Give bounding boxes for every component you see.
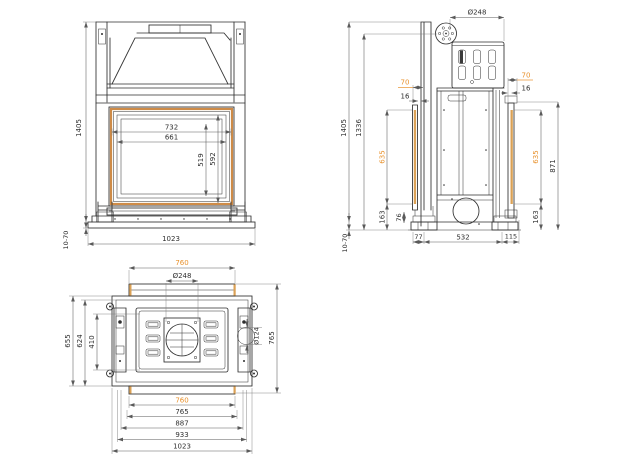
dim-side-front-thickness: 16 xyxy=(401,93,410,101)
side-top-box xyxy=(452,42,504,88)
side-view: Ø248 1405 1336 10-70 70 16 635 163 76 77… xyxy=(340,9,558,253)
dim-side-rear-thickness: 16 xyxy=(522,85,531,93)
dim-plan-depth-inner: 624 xyxy=(76,334,84,348)
dim-plan-depth-total: 765 xyxy=(268,331,276,344)
dim-front-glass-height: 519 xyxy=(197,153,205,166)
dim-plan-frame-width-bottom: 760 xyxy=(175,397,188,405)
side-lift-rod xyxy=(460,51,463,64)
dim-side-front-overhang: 77 xyxy=(414,233,422,241)
drawing-svg: 1405 10-70 1023 732 661 519 592 xyxy=(0,0,624,460)
front-view: 1405 10-70 1023 732 661 519 592 xyxy=(62,22,255,249)
side-rear-foot xyxy=(492,222,518,230)
dim-plan-overall-width: 1023 xyxy=(173,443,191,451)
dim-side-rear-lower: 163 xyxy=(532,210,540,223)
dim-side-rear-overhang: 115 xyxy=(505,233,517,241)
front-left-foot xyxy=(97,212,114,222)
dim-front-door-height: 592 xyxy=(209,152,217,165)
side-front-frame-highlight xyxy=(414,110,416,204)
dim-side-body-height: 1336 xyxy=(355,119,363,137)
dim-plan-outlet-dia: Ø124 xyxy=(253,327,261,345)
dim-front-door-width: 732 xyxy=(165,124,178,132)
dim-side-rear-gap: 70 xyxy=(522,72,531,80)
dim-plan-base-width: 933 xyxy=(175,431,188,439)
dim-side-foot-height: 76 xyxy=(395,213,403,221)
technical-drawing-canvas: 1405 10-70 1023 732 661 519 592 xyxy=(0,0,624,460)
side-rear-shield-highlight xyxy=(511,110,513,204)
dim-side-front-frame-height: 635 xyxy=(379,150,387,163)
side-bottom-outlet xyxy=(453,198,479,224)
dim-side-foot-range: 10-70 xyxy=(341,234,349,253)
plan-view: 760 Ø248 655 624 410 Ø124 765 760 765 88… xyxy=(64,259,281,454)
front-base-plate xyxy=(88,222,255,228)
dim-side-rear-frame-height: 635 xyxy=(532,150,540,163)
dim-side-front-lower: 163 xyxy=(379,210,387,223)
side-front-foot xyxy=(411,222,437,230)
dim-plan-depth-opening: 410 xyxy=(88,335,96,348)
dim-plan-depth-overall: 655 xyxy=(64,334,72,347)
dim-side-front-gap: 70 xyxy=(401,79,410,87)
dim-plan-flue-dia: Ø248 xyxy=(173,272,192,280)
dim-side-rear-height: 871 xyxy=(549,159,557,172)
plan-front-frame xyxy=(129,386,235,394)
dim-plan-body-width: 887 xyxy=(175,420,188,428)
dim-plan-frame-outer-width: 765 xyxy=(175,408,188,416)
dim-front-overall-height: 1405 xyxy=(75,119,83,137)
dim-side-depth: 532 xyxy=(456,234,469,242)
dim-side-overall-height: 1405 xyxy=(340,119,348,137)
dim-side-flue-dia: Ø248 xyxy=(468,9,487,17)
dim-front-glass-width: 661 xyxy=(165,134,178,142)
dim-plan-frame-width-top: 760 xyxy=(175,259,188,267)
dim-front-overall-width: 1023 xyxy=(162,235,180,243)
front-hood xyxy=(112,38,228,84)
front-right-foot xyxy=(230,212,247,222)
dim-front-foot-range: 10-70 xyxy=(62,231,70,250)
